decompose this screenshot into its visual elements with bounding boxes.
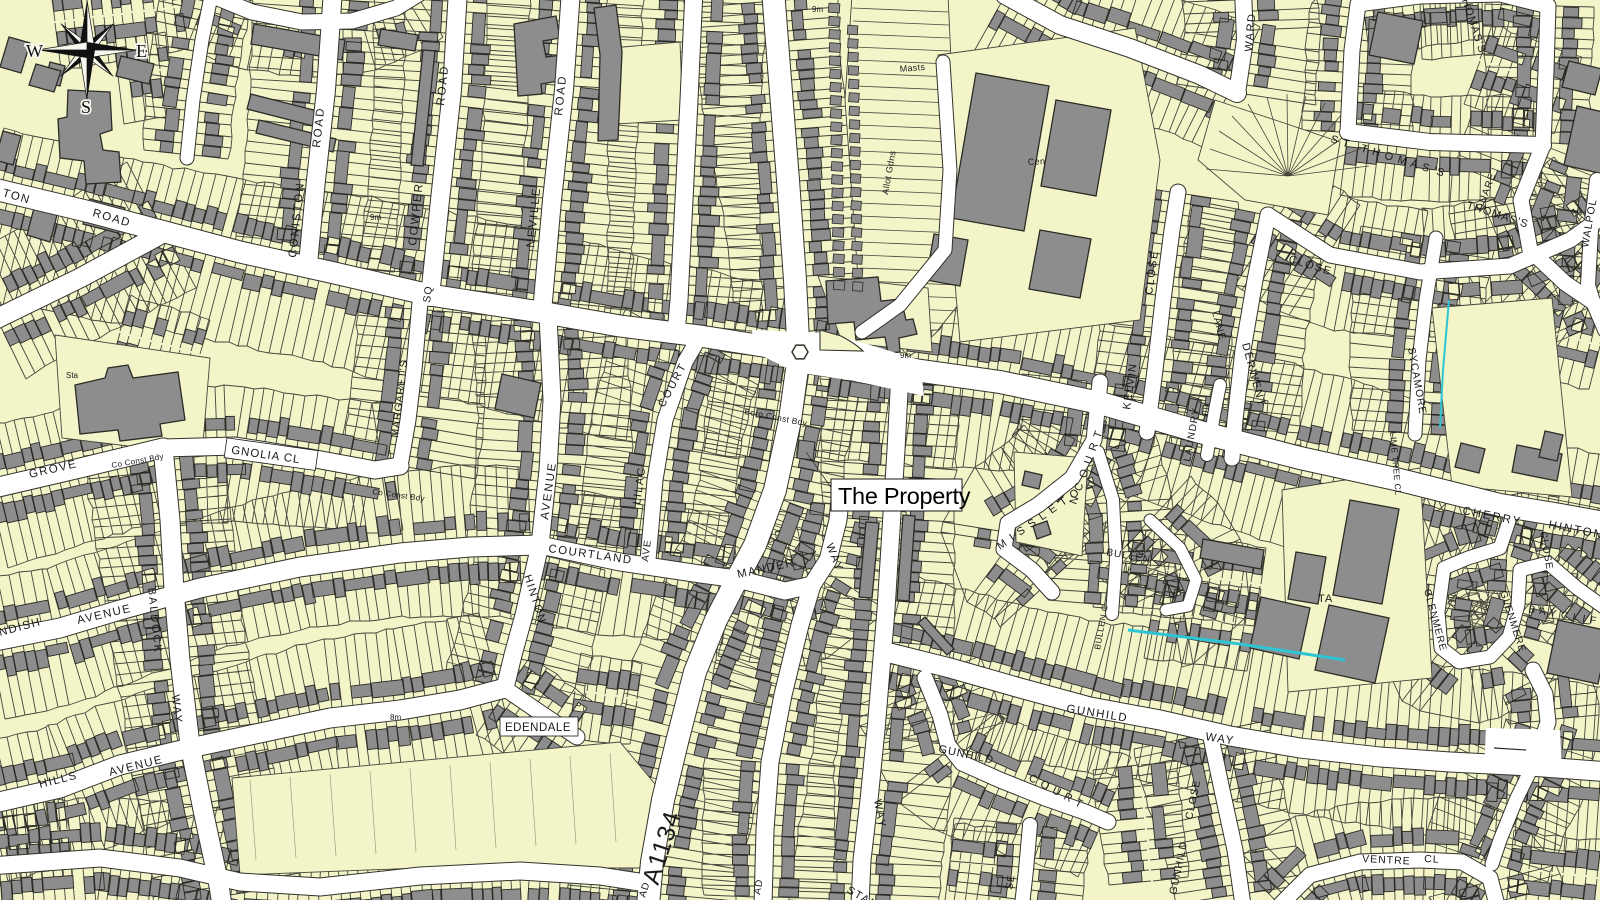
svg-text:CL: CL bbox=[1424, 853, 1440, 866]
svg-text:S: S bbox=[81, 97, 91, 117]
svg-text:SQ: SQ bbox=[421, 285, 435, 304]
svg-text:The Property: The Property bbox=[838, 483, 971, 509]
svg-text:9m: 9m bbox=[812, 5, 823, 14]
svg-text:VENTRE: VENTRE bbox=[1362, 853, 1411, 868]
svg-text:8m: 8m bbox=[390, 713, 401, 722]
svg-text:9m: 9m bbox=[370, 213, 381, 222]
svg-text:Sta: Sta bbox=[66, 371, 79, 380]
svg-text:TA: TA bbox=[1318, 593, 1333, 605]
svg-text:EDENDALE: EDENDALE bbox=[505, 722, 571, 734]
svg-text:9m: 9m bbox=[900, 351, 911, 360]
svg-text:E: E bbox=[136, 41, 147, 61]
svg-text:Cen: Cen bbox=[1028, 156, 1046, 167]
svg-text:W: W bbox=[26, 41, 43, 61]
